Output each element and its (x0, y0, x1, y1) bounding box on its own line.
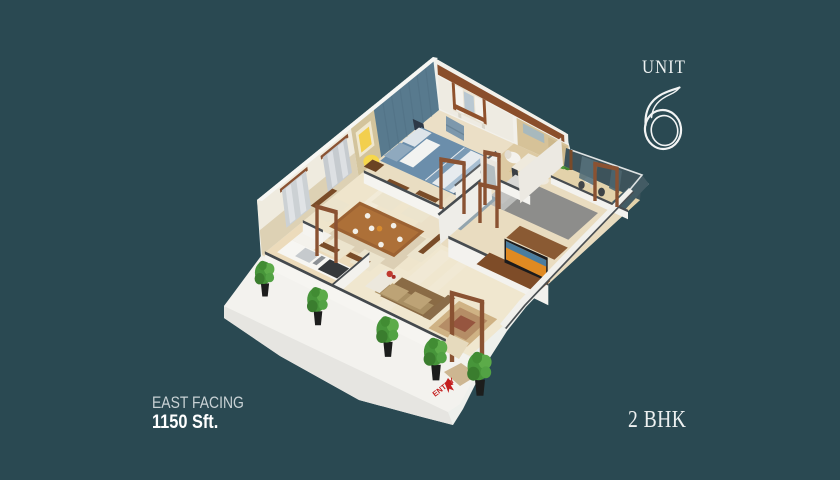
svg-text:EAST FACING: EAST FACING (152, 394, 244, 413)
svg-text:UNIT: UNIT (642, 56, 686, 77)
svg-text:2 BHK: 2 BHK (628, 405, 686, 432)
svg-text:1150 Sft.: 1150 Sft. (152, 411, 218, 432)
